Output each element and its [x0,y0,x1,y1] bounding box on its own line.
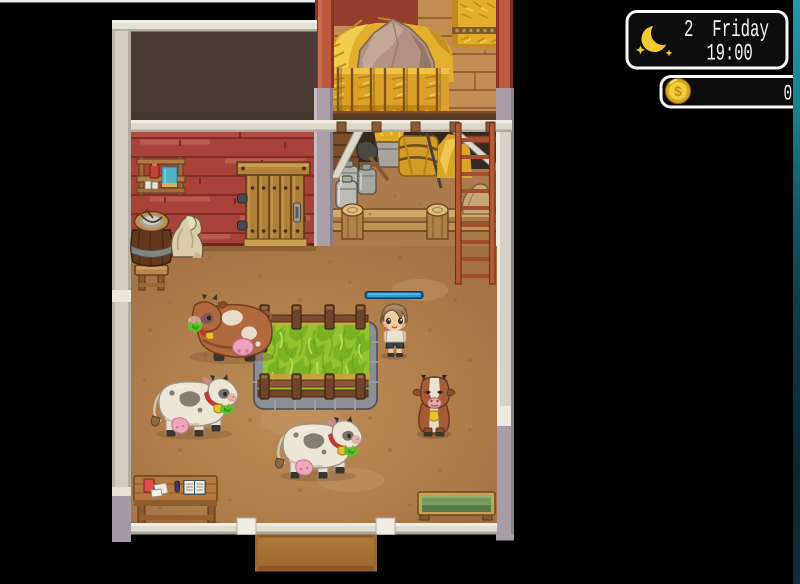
svg-text:$: $ [674,85,682,101]
svg-text:19:00: 19:00 [707,41,753,68]
svg-text:0: 0 [784,82,793,107]
